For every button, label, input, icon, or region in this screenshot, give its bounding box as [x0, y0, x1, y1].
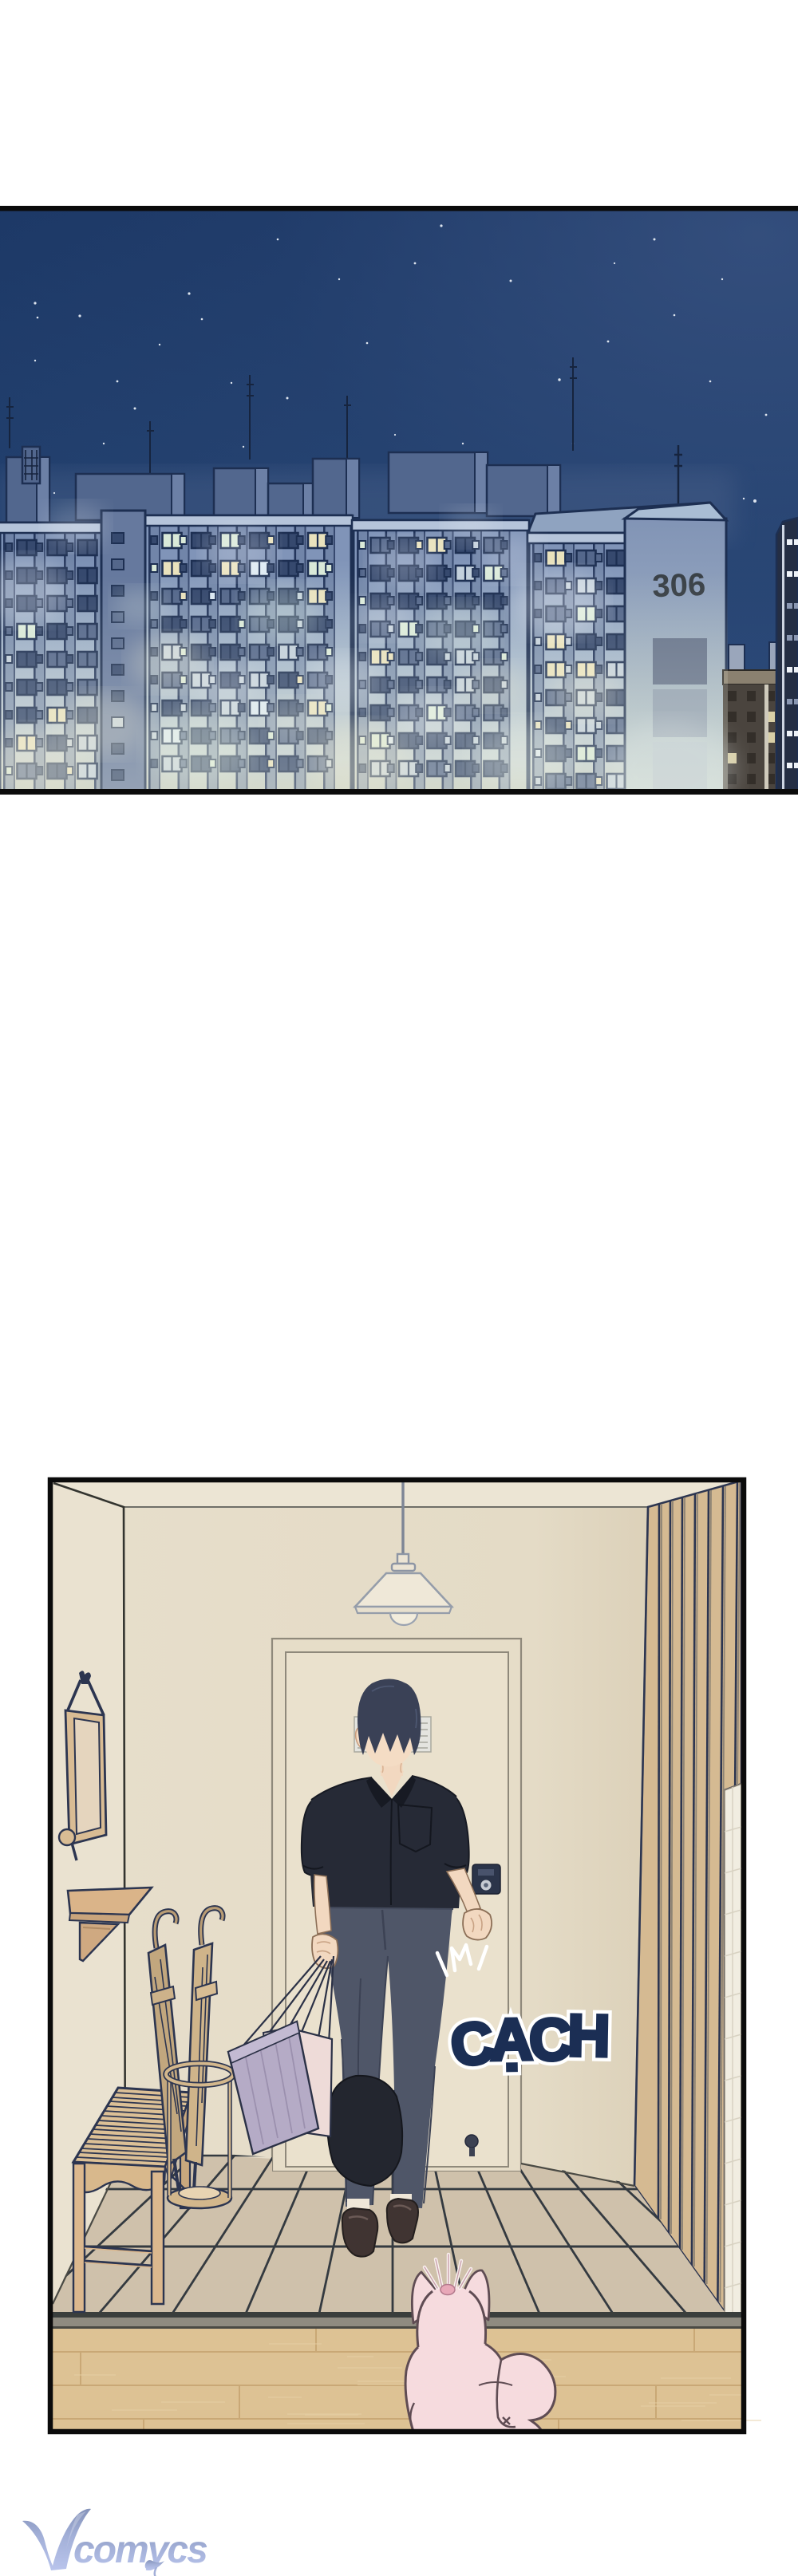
svg-text:H: H [567, 2002, 611, 2069]
svg-text:Ạ: Ạ [489, 2006, 533, 2073]
svg-text:comycs: comycs [73, 2529, 207, 2571]
